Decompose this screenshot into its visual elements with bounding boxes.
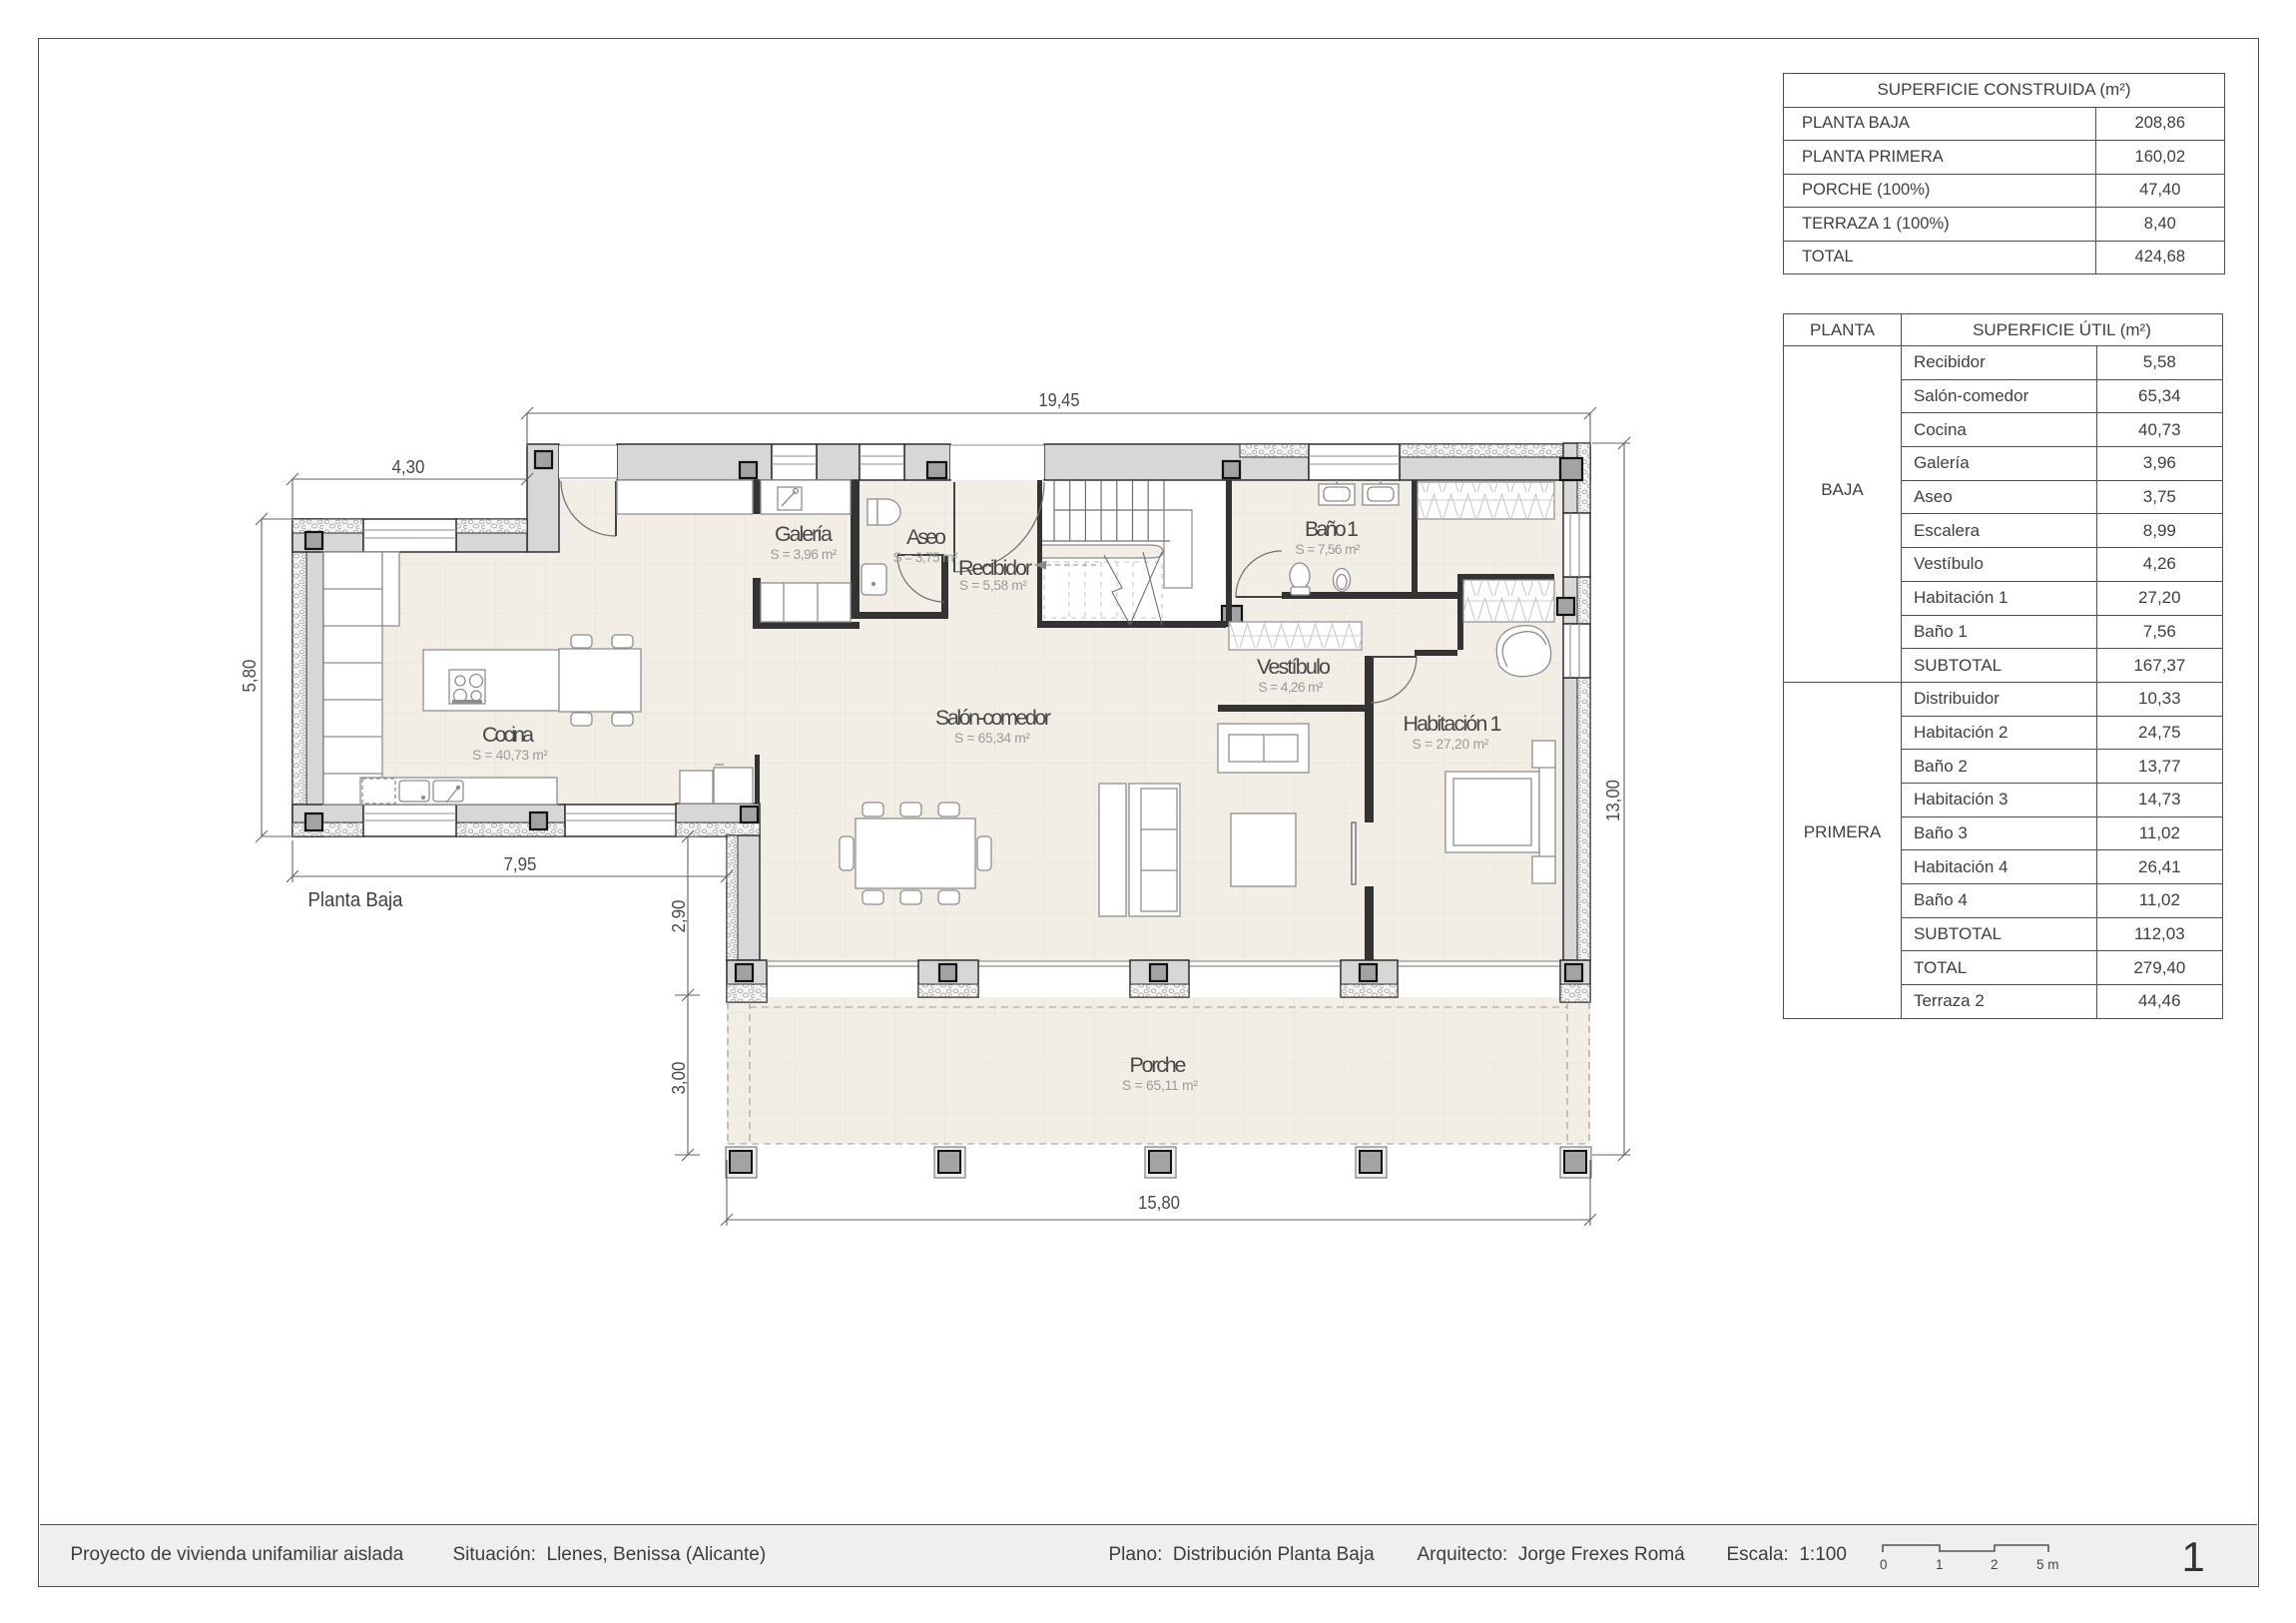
svg-text:S = 40,73 m²: S = 40,73 m² bbox=[472, 748, 548, 763]
svg-text:1: 1 bbox=[1936, 1557, 1944, 1572]
svg-text:Aseo: Aseo bbox=[906, 525, 946, 549]
svg-text:Galería: Galería bbox=[775, 522, 833, 546]
svg-text:5,80: 5,80 bbox=[240, 660, 260, 693]
svg-text:S = 3,75 m²: S = 3,75 m² bbox=[893, 550, 958, 565]
svg-text:13,00: 13,00 bbox=[1603, 780, 1623, 821]
svg-text:Habitación 1: Habitación 1 bbox=[1404, 712, 1502, 736]
svg-text:S = 65,11 m²: S = 65,11 m² bbox=[1122, 1078, 1198, 1093]
svg-text:Recibidor: Recibidor bbox=[958, 556, 1032, 580]
svg-text:Vestíbulo: Vestíbulo bbox=[1257, 655, 1331, 679]
svg-text:S = 27,20 m²: S = 27,20 m² bbox=[1413, 737, 1489, 752]
svg-text:19,45: 19,45 bbox=[1039, 390, 1080, 410]
svg-text:15,80: 15,80 bbox=[1138, 1193, 1180, 1213]
svg-text:S = 5,58 m²: S = 5,58 m² bbox=[959, 578, 1027, 593]
svg-text:2,90: 2,90 bbox=[669, 900, 689, 933]
svg-text:Porche: Porche bbox=[1130, 1053, 1187, 1077]
svg-text:Cocina: Cocina bbox=[482, 723, 534, 747]
svg-text:S = 3,96 m²: S = 3,96 m² bbox=[771, 547, 838, 562]
svg-text:2: 2 bbox=[1991, 1557, 1999, 1572]
svg-text:S = 65,34 m²: S = 65,34 m² bbox=[954, 731, 1030, 746]
svg-text:Planta Baja: Planta Baja bbox=[308, 888, 404, 911]
svg-text:4,30: 4,30 bbox=[392, 457, 425, 477]
svg-text:S = 4,26 m²: S = 4,26 m² bbox=[1259, 680, 1324, 695]
svg-text:Salón-comedor: Salón-comedor bbox=[935, 706, 1051, 730]
svg-text:3,00: 3,00 bbox=[669, 1062, 689, 1095]
svg-text:7,95: 7,95 bbox=[504, 854, 537, 874]
svg-text:5 m: 5 m bbox=[2036, 1557, 2059, 1572]
svg-text:S = 7,56 m²: S = 7,56 m² bbox=[1296, 542, 1361, 557]
svg-text:Baño 1: Baño 1 bbox=[1305, 517, 1359, 541]
svg-text:0: 0 bbox=[1880, 1557, 1888, 1572]
